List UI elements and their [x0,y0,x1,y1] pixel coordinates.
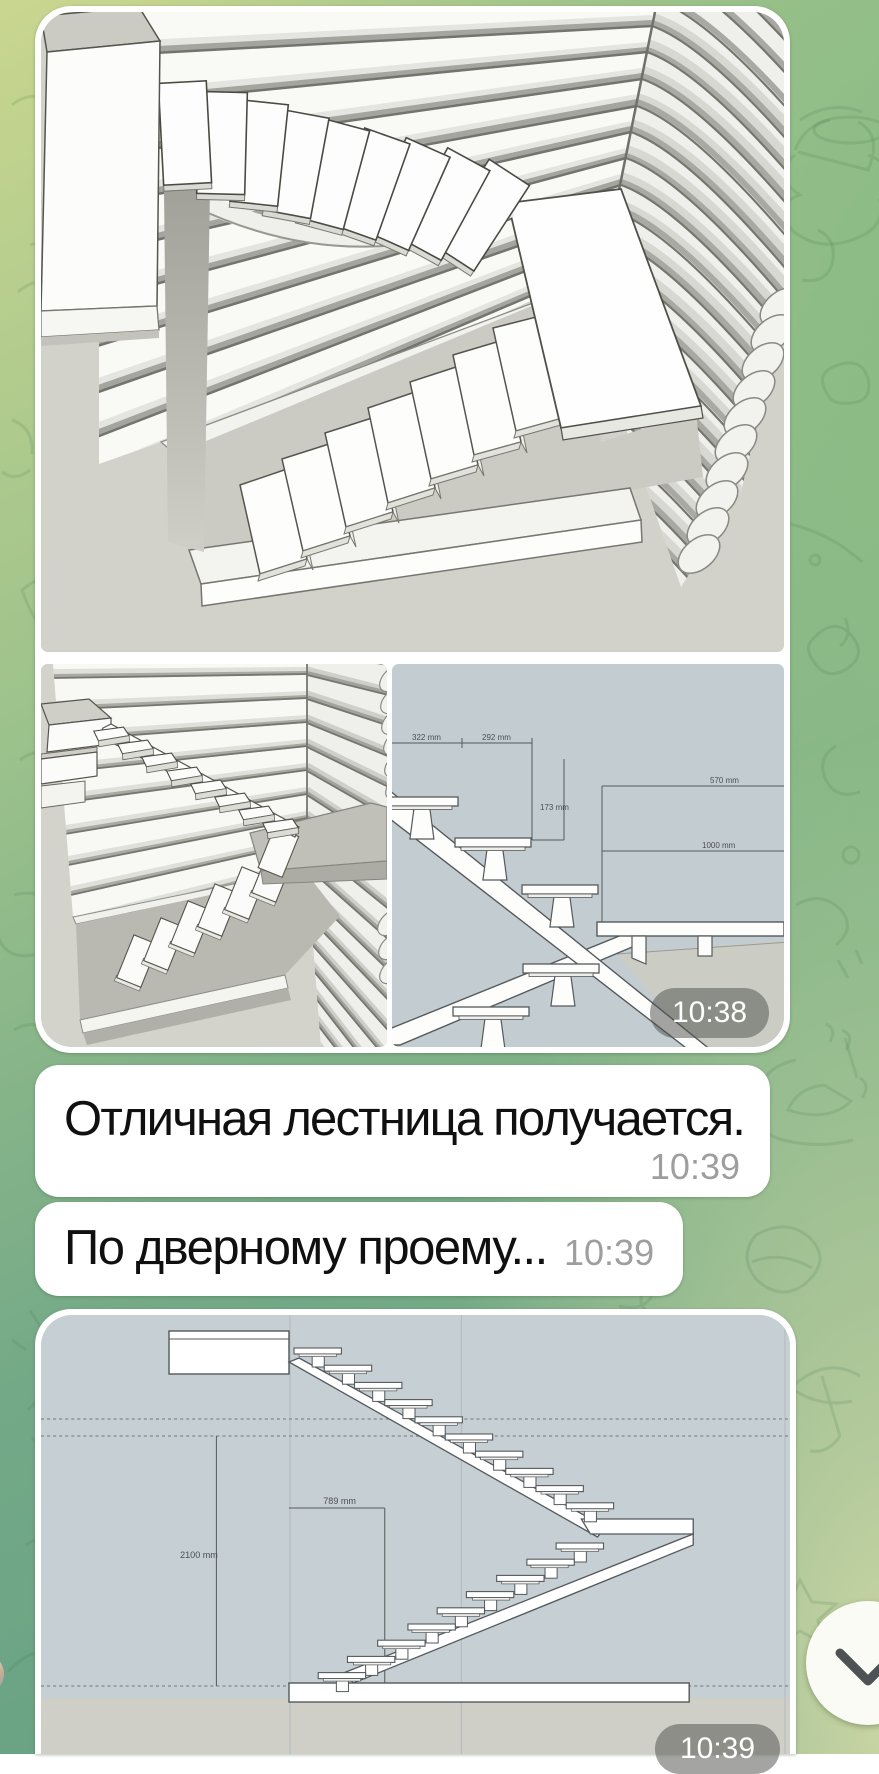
svg-text:292 mm: 292 mm [482,733,511,742]
svg-text:173 mm: 173 mm [540,803,569,812]
svg-text:2100 mm: 2100 mm [180,1550,218,1560]
svg-text:789 mm: 789 mm [323,1496,356,1506]
svg-text:322 mm: 322 mm [412,733,441,742]
svg-text:1000 mm: 1000 mm [702,841,736,850]
svg-text:570 mm: 570 mm [710,776,739,785]
